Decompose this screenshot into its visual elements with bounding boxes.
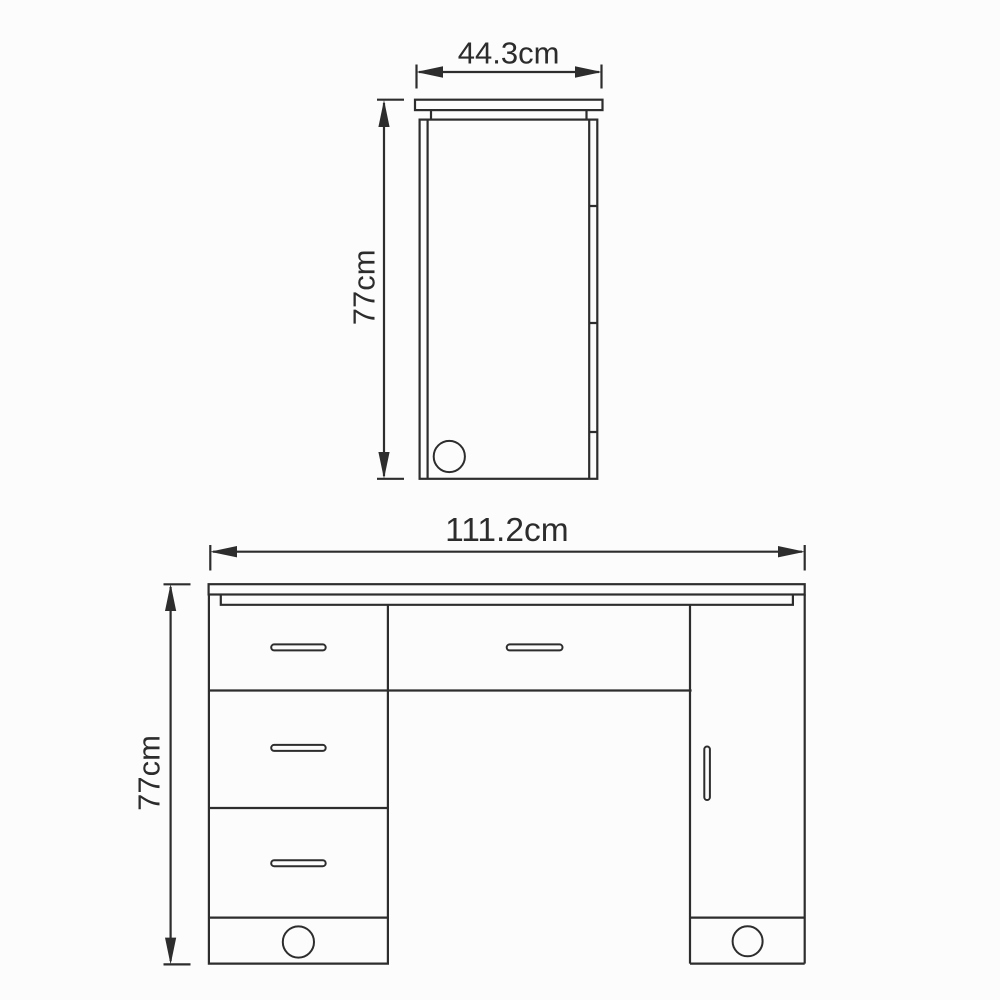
svg-text:77cm: 77cm (132, 735, 167, 811)
svg-text:44.3cm: 44.3cm (458, 35, 560, 70)
svg-text:111.2cm: 111.2cm (445, 512, 569, 549)
svg-text:77cm: 77cm (347, 249, 382, 325)
